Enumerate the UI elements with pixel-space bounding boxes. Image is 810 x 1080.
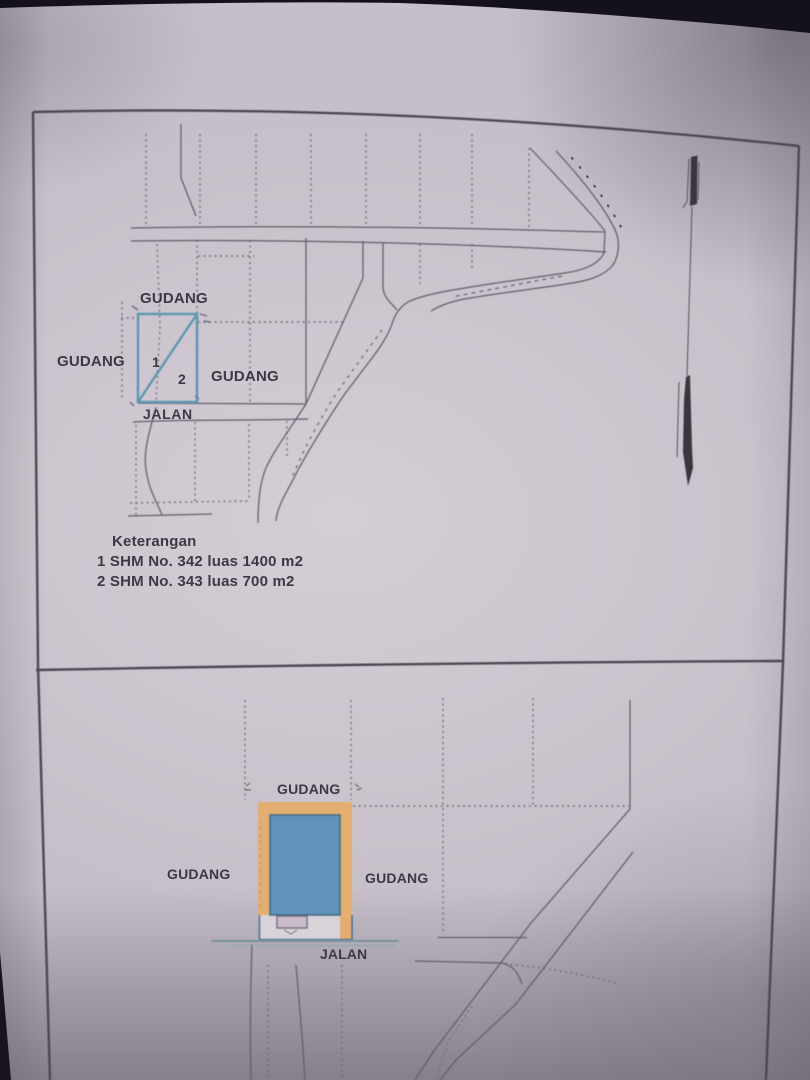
svg-text:Keterangan: Keterangan	[112, 533, 197, 550]
svg-text:GUDANG: GUDANG	[365, 870, 428, 886]
svg-text:JALAN: JALAN	[143, 406, 193, 422]
svg-text:GUDANG: GUDANG	[277, 781, 340, 797]
svg-text:GUDANG: GUDANG	[57, 353, 125, 370]
svg-text:2: 2	[178, 371, 186, 387]
svg-text:GUDANG: GUDANG	[211, 368, 279, 385]
svg-text:GUDANG: GUDANG	[140, 290, 208, 307]
svg-text:GUDANG: GUDANG	[167, 866, 230, 882]
svg-text:2 SHM No. 343 luas 700 m2: 2 SHM No. 343 luas 700 m2	[97, 573, 295, 590]
svg-text:1 SHM No. 342 luas 1400 m2: 1 SHM No. 342 luas 1400 m2	[97, 553, 303, 570]
svg-text:JALAN: JALAN	[320, 946, 367, 962]
svg-text:1: 1	[152, 354, 160, 370]
